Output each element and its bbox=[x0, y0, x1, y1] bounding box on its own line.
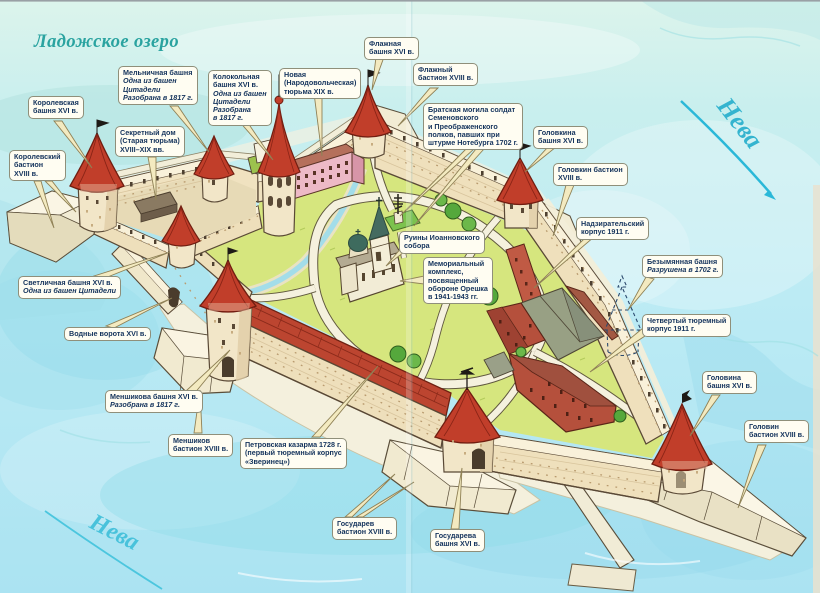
svg-text:Ладожское озеро: Ладожское озеро bbox=[33, 32, 179, 52]
